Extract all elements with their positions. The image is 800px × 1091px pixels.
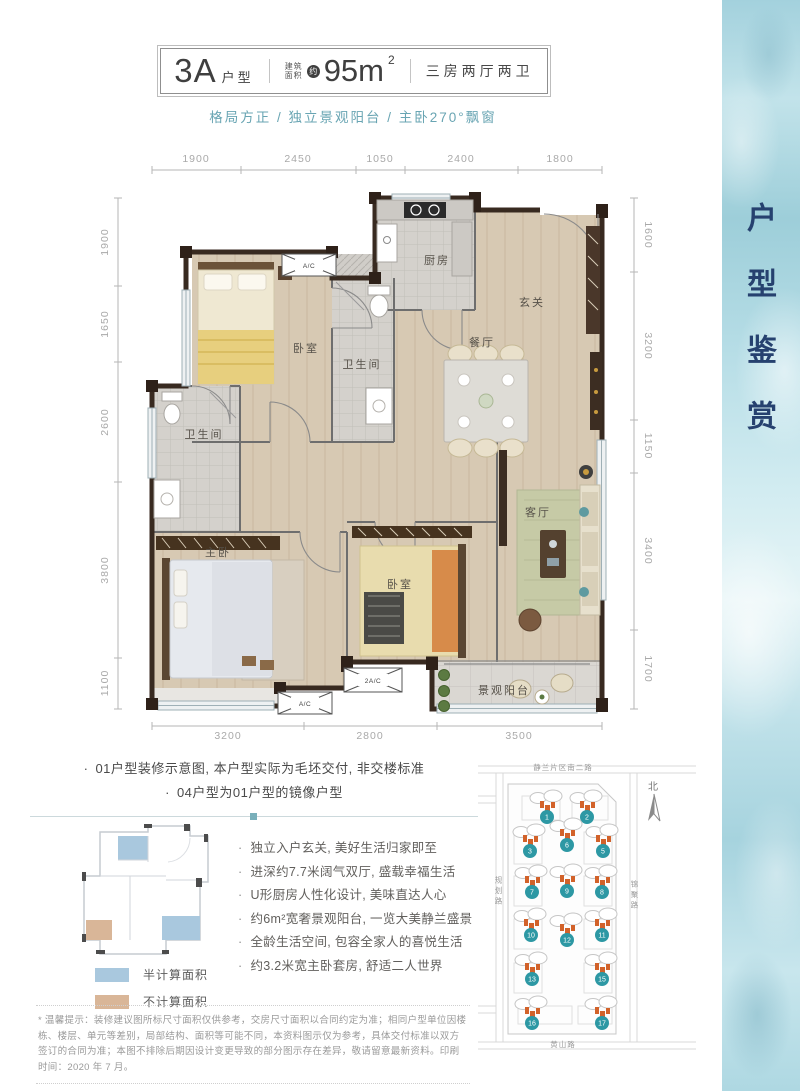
unit-code: 3A (174, 52, 216, 90)
floor-plan: A/C 2A/C A/C 厨房 玄关 餐厅 卧室 卫生间 卫生间 主卧 卧室 客… (92, 140, 662, 745)
sidebar-title: 户型鉴赏 (736, 202, 780, 466)
dim-top-2: 2450 (284, 153, 311, 165)
ac-label-2: 2A/C (365, 678, 381, 685)
area-group: 建筑 面积 约 95m 2 (285, 53, 395, 89)
dim-bottom-2: 2800 (356, 730, 383, 742)
room-label-bath1: 卫生间 (185, 427, 224, 441)
room-label-bedroom3: 卧室 (387, 577, 413, 591)
dim-right-2: 3200 (642, 332, 654, 359)
svg-text:12: 12 (563, 938, 571, 945)
dim-right-4: 3400 (642, 537, 654, 564)
dim-top-3: 1050 (366, 153, 393, 165)
dim-left-5: 1100 (99, 670, 111, 697)
road-label-top: 静兰片区南二路 (498, 762, 628, 773)
dim-right-1: 1600 (642, 221, 654, 248)
road-label-bottom: 黄山路 (498, 1039, 628, 1050)
room-label-master: 主卧 (205, 546, 231, 559)
mini-plan-half-area-1 (118, 836, 148, 860)
dim-bottom-1: 3200 (214, 730, 241, 742)
notes: 01户型装修示意图, 本户型实际为毛坯交付, 非交楼标准 04户型为01户型的镜… (28, 757, 480, 805)
room-label-kitchen: 厨房 (424, 254, 450, 267)
bedroom3-bed (352, 526, 472, 658)
header-divider (269, 59, 270, 83)
feature-item: 约3.2米宽主卧套房, 舒适二人世界 (238, 960, 478, 973)
area-prefix-top: 建筑 (285, 62, 303, 71)
legend-label-half: 半计算面积 (143, 966, 208, 983)
dim-left-2: 1650 (99, 310, 111, 337)
svg-text:8: 8 (600, 890, 604, 897)
dim-top-5: 1800 (546, 153, 573, 165)
features-list: 独立入户玄关, 美好生活归家即至 进深约7.7米阔气双厅, 盛载幸福生活 U形厨… (238, 842, 478, 983)
brochure-page: 户型鉴赏 3A 户型 建筑 面积 约 95m 2 三房两厅两卫 格局方正 / 独… (0, 0, 800, 1091)
room-label-balcony: 景观阳台 (478, 683, 530, 697)
feature-item: 进深约7.7米阔气双厅, 盛载幸福生活 (238, 866, 478, 879)
watercolor-sidebar (722, 0, 800, 1091)
svg-text:6: 6 (565, 843, 569, 850)
mini-plan (70, 822, 242, 964)
approx-badge: 约 (307, 65, 320, 78)
feature-item: 约6m²宽奢景观阳台, 一览大美静兰盛景 (238, 913, 478, 926)
room-label-dining: 餐厅 (469, 335, 495, 349)
ac-platform-top: A/C (282, 254, 336, 276)
dim-bottom-3: 3500 (505, 730, 532, 742)
dim-left-3: 2600 (99, 408, 111, 435)
room-config: 三房两厅两卫 (426, 61, 534, 81)
ac-label-1: A/C (303, 263, 315, 270)
dim-top-4: 2400 (447, 153, 474, 165)
dim-top-1: 1900 (182, 153, 209, 165)
svg-text:3: 3 (528, 849, 532, 856)
unit-code-group: 3A 户型 (174, 52, 253, 90)
dim-right-3: 1150 (642, 433, 654, 460)
ac-label-3: A/C (299, 701, 311, 708)
road-label-right: 锦聚路 (629, 880, 640, 912)
site-map: 1 2 3 6 5 7 9 8 10 12 11 13 15 16 17 (478, 756, 696, 1072)
compass-icon (646, 793, 662, 825)
subtitle: 格局方正 / 独立景观阳台 / 主卧270°飘窗 (0, 106, 706, 126)
ac-platform-mid: 2A/C (344, 668, 402, 692)
svg-text:17: 17 (598, 1021, 606, 1028)
road-label-left: 规划路 (493, 876, 504, 908)
north-label: 北 (648, 778, 658, 793)
svg-text:7: 7 (530, 890, 534, 897)
room-label-entry: 玄关 (519, 295, 545, 309)
dim-left-1: 1900 (99, 228, 111, 255)
note-line-2: 04户型为01户型的镜像户型 (28, 781, 480, 805)
dim-left-4: 3800 (99, 556, 111, 583)
mini-plan-excluded-area (86, 920, 112, 940)
header-box: 3A 户型 建筑 面积 约 95m 2 三房两厅两卫 (160, 48, 548, 94)
dim-right-5: 1700 (642, 655, 654, 682)
svg-text:13: 13 (528, 977, 536, 984)
disclaimer: * 温馨提示：装修建议图所标尺寸面积仅供参考，交房尺寸面积以合同约定为准；相同户… (36, 1005, 470, 1084)
legend-row-half: 半计算面积 (95, 966, 208, 983)
svg-text:10: 10 (527, 933, 535, 940)
area-prefix: 建筑 面积 (285, 62, 303, 80)
area-exponent: 2 (388, 53, 395, 67)
area-prefix-bottom: 面积 (285, 71, 303, 80)
dining-table (444, 345, 528, 457)
entry-door-gap (540, 205, 598, 215)
feature-item: 全龄生活空间, 包容全家人的喜悦生活 (238, 936, 478, 949)
svg-text:1: 1 (545, 815, 549, 822)
note-line-1: 01户型装修示意图, 本户型实际为毛坯交付, 非交楼标准 (28, 757, 480, 781)
section-divider (30, 816, 478, 817)
svg-text:2: 2 (585, 815, 589, 822)
mini-plan-half-area-2 (162, 916, 200, 940)
legend-swatch-half (95, 968, 129, 982)
feature-item: 独立入户玄关, 美好生活归家即至 (238, 842, 478, 855)
room-label-bath2: 卫生间 (343, 357, 382, 371)
header-divider (410, 59, 411, 83)
room-label-living: 客厅 (525, 505, 551, 519)
svg-text:5: 5 (601, 849, 605, 856)
svg-text:11: 11 (598, 933, 605, 940)
ac-platform-bottom: A/C (278, 692, 332, 714)
room-label-bedroom2: 卧室 (293, 341, 319, 355)
area-value: 95m (324, 53, 384, 89)
svg-text:15: 15 (598, 977, 606, 984)
unit-code-suffix: 户型 (222, 67, 254, 86)
feature-item: U形厨房人性化设计, 美味直达人心 (238, 889, 478, 902)
svg-text:16: 16 (528, 1021, 536, 1028)
svg-text:9: 9 (565, 889, 569, 896)
